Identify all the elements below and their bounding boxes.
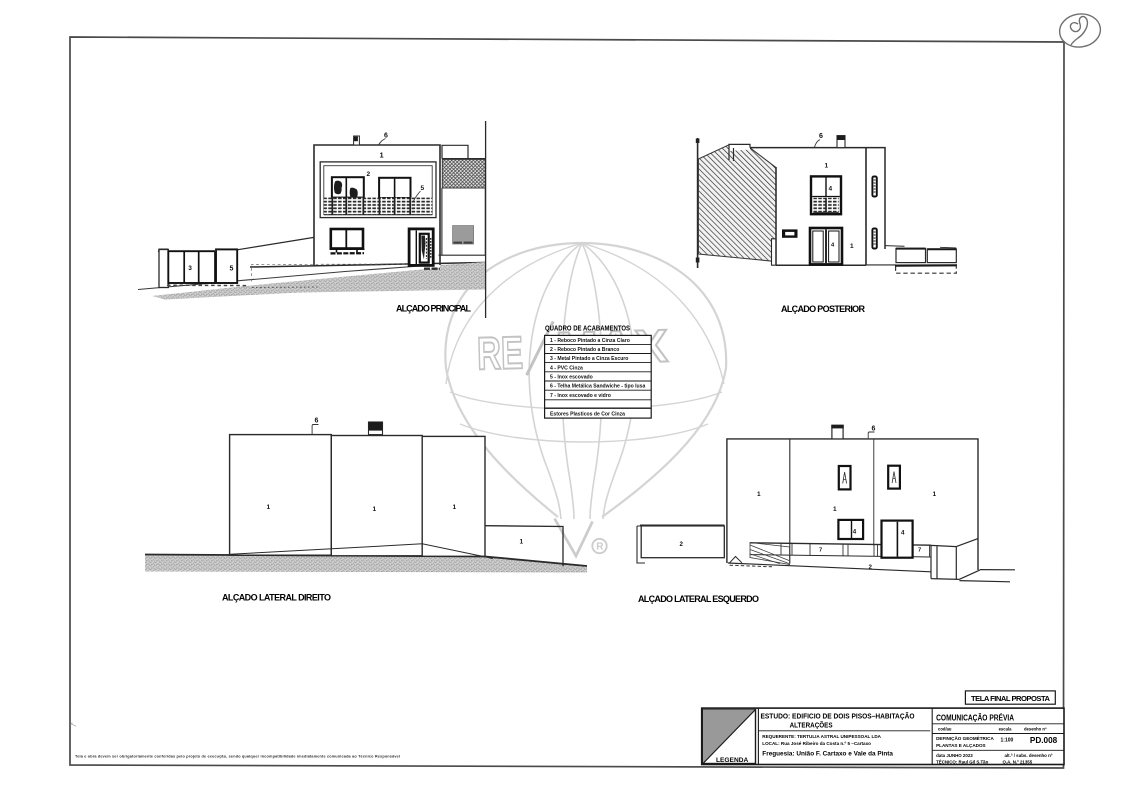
- svg-text:1: 1: [757, 491, 761, 498]
- svg-text:1: 1: [933, 491, 937, 498]
- svg-text:1:100: 1:100: [1001, 737, 1014, 743]
- svg-text:data JUNHO 2023: data JUNHO 2023: [936, 753, 973, 758]
- svg-text:R: R: [596, 542, 604, 553]
- svg-text:3 - Metal Pintado a Cinza Escu: 3 - Metal Pintado a Cinza Escuro: [550, 356, 628, 362]
- svg-text:1: 1: [453, 504, 457, 511]
- svg-text:5: 5: [230, 266, 234, 273]
- svg-text:6: 6: [872, 426, 876, 433]
- svg-text:7: 7: [918, 548, 921, 554]
- svg-text:4: 4: [829, 186, 833, 193]
- svg-text:2 - Reboco Pintado a Branco: 2 - Reboco Pintado a Branco: [550, 347, 619, 353]
- svg-text:ALÇADO PRINCIPAL: ALÇADO PRINCIPAL: [396, 304, 472, 314]
- svg-text:1: 1: [520, 539, 524, 546]
- svg-text:TÉCNICO: Raul Gil S.Tão: TÉCNICO: Raul Gil S.Tão: [936, 760, 989, 765]
- svg-text:LOCAL: Rua José Ribeiro da Cos: LOCAL: Rua José Ribeiro da Costa n.º 5 –…: [762, 741, 871, 746]
- svg-text:1: 1: [825, 163, 829, 170]
- svg-text:QUADRO DE ACABAMENTOS: QUADRO DE ACABAMENTOS: [545, 324, 630, 333]
- svg-text:ALÇADO POSTERIOR: ALÇADO POSTERIOR: [781, 304, 866, 314]
- svg-text:cod/au: cod/au: [938, 726, 952, 731]
- svg-text:RE: RE: [476, 326, 523, 379]
- svg-text:1: 1: [380, 151, 384, 160]
- svg-text:7: 7: [819, 548, 822, 554]
- svg-text:DEFINIÇÃO GEOMÉTRICA: DEFINIÇÃO GEOMÉTRICA: [936, 734, 994, 741]
- svg-text:PLANTAS E ALÇADOS: PLANTAS E ALÇADOS: [936, 743, 986, 748]
- svg-text:4: 4: [853, 529, 857, 536]
- svg-text:1: 1: [833, 506, 837, 513]
- svg-text:ESTUDO: EDIFICIO DE DOIS PISOS: ESTUDO: EDIFICIO DE DOIS PISOS–HABITAÇÃO: [761, 712, 916, 721]
- svg-text:4 - PVC Cinza: 4 - PVC Cinza: [550, 365, 583, 371]
- svg-text:6: 6: [819, 133, 823, 140]
- svg-text:escala: escala: [999, 727, 1012, 732]
- svg-text:6: 6: [315, 418, 319, 425]
- svg-text:ALÇADO LATERAL DIREITO: ALÇADO LATERAL DIREITO: [222, 593, 331, 603]
- svg-text:7 - Inox escovado e vidro: 7 - Inox escovado e vidro: [550, 393, 611, 399]
- svg-text:1: 1: [850, 243, 854, 250]
- svg-text:6 - Telha Metálica Sandwiche -: 6 - Telha Metálica Sandwiche - tipo lusa: [550, 384, 645, 390]
- svg-text:5 - Inox escovado: 5 - Inox escovado: [550, 375, 593, 381]
- svg-text:Tela e obra devem ser obrigato: Tela e obra devem ser obrigatoriamente c…: [75, 755, 400, 759]
- svg-text:O.A. N.º 21355: O.A. N.º 21355: [1003, 760, 1033, 765]
- svg-text:2: 2: [680, 541, 684, 548]
- svg-text:COMUNICAÇÃO PRÉVIA: COMUNICAÇÃO PRÉVIA: [936, 714, 1014, 723]
- svg-text:1 - Reboco Pintado a Cinza Cla: 1 - Reboco Pintado a Cinza Claro: [550, 338, 630, 344]
- svg-text:LEGENDA: LEGENDA: [716, 757, 748, 764]
- svg-text:4: 4: [901, 530, 905, 537]
- svg-text:ALÇADO LATERAL ESQUERDO: ALÇADO LATERAL ESQUERDO: [638, 594, 759, 604]
- svg-text:3: 3: [188, 265, 192, 272]
- svg-text:Freguesia: União F. Cartaxo e: Freguesia: União F. Cartaxo e Vale da Pi…: [762, 751, 893, 758]
- svg-text:2: 2: [869, 564, 873, 571]
- svg-text:alt.ª / subs. desenho nº: alt.ª / subs. desenho nº: [1005, 753, 1053, 758]
- svg-text:2: 2: [367, 171, 371, 178]
- svg-text:5: 5: [421, 185, 425, 192]
- svg-text:desenho nº: desenho nº: [1024, 727, 1047, 732]
- svg-text:Estores Plasticos de Cor Cinza: Estores Plasticos de Cor Cinza: [550, 411, 625, 417]
- svg-text:PD.008: PD.008: [1030, 736, 1058, 745]
- svg-text:1: 1: [267, 504, 271, 511]
- svg-text:TELA FINAL PROPOSTA: TELA FINAL PROPOSTA: [971, 694, 1051, 703]
- svg-text:1: 1: [373, 506, 377, 513]
- svg-text:ALTERAÇÕES: ALTERAÇÕES: [790, 721, 833, 730]
- svg-text:REQUERENTE: TERTULIA ASTRAL UN: REQUERENTE: TERTULIA ASTRAL UNIPESSOAL L…: [762, 734, 881, 739]
